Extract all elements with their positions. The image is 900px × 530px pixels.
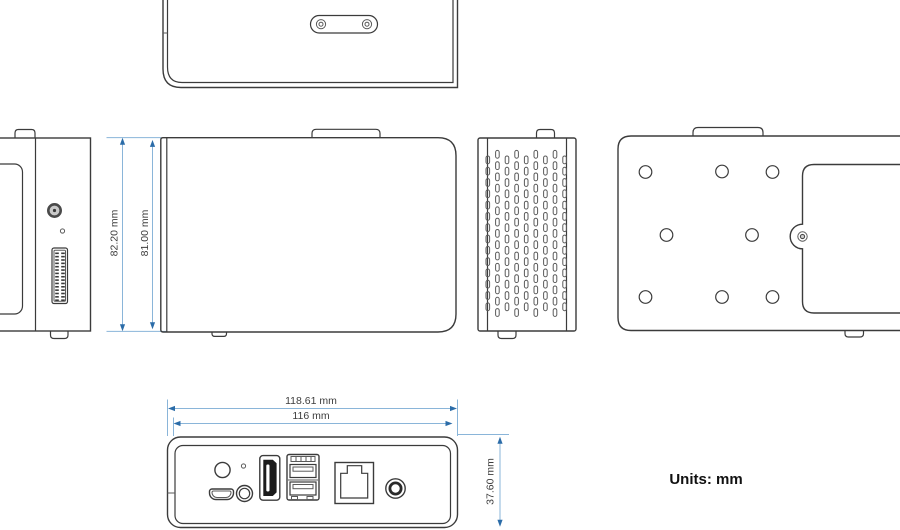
device-dimension-drawing: 82.20 mm 81.00 mm (0, 0, 900, 530)
vent-slot (553, 196, 557, 204)
vent-slot (544, 213, 548, 221)
front-outline (161, 138, 456, 332)
vent-slot (515, 196, 519, 204)
top-view-inner-outline (168, 0, 454, 83)
vent-slot (505, 213, 509, 221)
vent-slot (515, 297, 519, 305)
arrow-up-icon (150, 140, 155, 147)
connector-pin (61, 296, 65, 298)
vent-slot (524, 280, 528, 288)
height-dimensions: 82.20 mm 81.00 mm (107, 138, 167, 332)
vent-slot (553, 252, 557, 260)
vent-slot (534, 309, 538, 317)
vent-slot (563, 213, 567, 221)
arrow-up-icon (497, 437, 502, 444)
vent-slot (505, 156, 509, 164)
vent-slot-grid (486, 150, 566, 316)
vent-slot (553, 275, 557, 283)
vent-slot (515, 263, 519, 271)
vent-slot (505, 303, 509, 311)
vent-slot (524, 235, 528, 243)
vent-slot (534, 207, 538, 215)
top-tab (537, 130, 555, 139)
top-view (163, 0, 458, 88)
connector-pin (55, 259, 59, 261)
vent-slot (553, 241, 557, 249)
vent-slot (515, 150, 519, 158)
usb-foot (307, 497, 313, 500)
vent-slot (563, 167, 567, 175)
connector-pin (55, 273, 59, 275)
vent-slot (544, 156, 548, 164)
vent-slot (563, 235, 567, 243)
vent-slot (505, 167, 509, 175)
vent-slot (544, 280, 548, 288)
vent-slot (534, 241, 538, 249)
mounting-hole-grid (639, 165, 779, 303)
vent-slot (505, 269, 509, 277)
mounting-hole (660, 229, 673, 242)
dc-jack (386, 479, 405, 498)
vent-slot (515, 184, 519, 192)
vent-slot (496, 286, 500, 294)
power-button (215, 462, 230, 477)
vent-slot (496, 252, 500, 260)
vent-slot (544, 269, 548, 277)
connector-pin (55, 296, 59, 298)
connector-pin (61, 259, 65, 261)
mounting-hole (639, 166, 652, 179)
vent-side-view (478, 130, 576, 339)
height-outer-label: 82.20 mm (108, 209, 120, 256)
mounting-hole (716, 291, 729, 304)
vent-slot (553, 286, 557, 294)
vent-slot (544, 246, 548, 254)
usb-tongue (293, 467, 313, 471)
vent-slot (496, 196, 500, 204)
vent-slot (515, 162, 519, 170)
vent-slot (563, 269, 567, 277)
vent-slot (534, 275, 538, 283)
vent-slot (524, 156, 528, 164)
connector-pin (61, 256, 65, 258)
connector-pin (61, 276, 65, 278)
pin-connector-pins (55, 253, 65, 302)
vent-slot (524, 201, 528, 209)
vent-slot (496, 230, 500, 238)
mounting-hole (766, 291, 779, 304)
connector-pin (61, 299, 65, 301)
vent-slot (505, 280, 509, 288)
vent-slot (505, 224, 509, 232)
vent-slot (496, 275, 500, 283)
vent-slot (496, 173, 500, 181)
vent-slot (534, 150, 538, 158)
top-tab (312, 129, 380, 137)
rear-port-view (168, 437, 458, 528)
connector-pin (55, 283, 59, 285)
vent-slot (534, 297, 538, 305)
vent-slot (534, 230, 538, 238)
vent-slot (534, 218, 538, 226)
units-note: Units: mm (669, 471, 742, 488)
vent-slot (563, 303, 567, 311)
pinhole (60, 229, 64, 233)
vent-slot (524, 258, 528, 266)
connector-pin (55, 289, 59, 291)
vent-slot (505, 179, 509, 187)
height-inner-label: 81.00 mm (139, 209, 151, 256)
vent-slot (524, 269, 528, 277)
vent-slot (534, 173, 538, 181)
mounting-hole (639, 291, 652, 304)
bottom-tab (51, 331, 69, 339)
connector-pin (55, 279, 59, 281)
vent-slot (534, 184, 538, 192)
arrow-left-icon (168, 406, 175, 411)
top-tab (693, 128, 763, 137)
vent-slot (515, 275, 519, 283)
connector-pin (61, 279, 65, 281)
vent-slot (515, 230, 519, 238)
hdmi-slot (266, 465, 269, 492)
connector-pin (55, 293, 59, 295)
connector-pin (55, 256, 59, 258)
connector-pin (61, 269, 65, 271)
vent-slot (496, 241, 500, 249)
connector-pin (61, 263, 65, 265)
arrow-up-icon (120, 138, 125, 145)
usb-foot (292, 497, 298, 500)
vent-slot (553, 150, 557, 158)
connector-pin (55, 253, 59, 255)
screw-center-dot (53, 209, 56, 212)
depth-label: 37.60 mm (484, 458, 496, 505)
vent-slot (505, 235, 509, 243)
vent-slot (496, 309, 500, 317)
connector-pin (55, 299, 59, 301)
connector-pin (61, 293, 65, 295)
bottom-tab (498, 331, 516, 339)
screw-icon (319, 22, 323, 26)
led-hole (241, 464, 245, 468)
vent-slot (563, 280, 567, 288)
screw-icon (800, 234, 804, 238)
connector-pin (61, 266, 65, 268)
vent-slot (563, 201, 567, 209)
arrow-right-icon (446, 421, 453, 426)
vent-slot (496, 263, 500, 271)
screw-icon (362, 20, 371, 29)
ethernet-port (335, 463, 374, 504)
vent-slot (534, 263, 538, 271)
vent-slot (515, 241, 519, 249)
connector-pin (61, 289, 65, 291)
connector-pin (55, 286, 59, 288)
top-tab (15, 130, 35, 139)
mounting-hole (766, 166, 779, 179)
vent-slot (524, 292, 528, 300)
connector-pin (55, 266, 59, 268)
vent-slot (534, 196, 538, 204)
connector-pin (61, 273, 65, 275)
vent-slot (553, 207, 557, 215)
connector-pin (61, 286, 65, 288)
vent-slot (505, 258, 509, 266)
vent-slot (544, 292, 548, 300)
vent-slot (563, 258, 567, 266)
bottom-view (618, 128, 900, 338)
vent-slot (563, 156, 567, 164)
left-side-view (0, 130, 91, 339)
vent-slot (496, 218, 500, 226)
arrow-right-icon (450, 406, 457, 411)
vent-slot (524, 179, 528, 187)
vent-slot (544, 167, 548, 175)
vent-slot (563, 292, 567, 300)
vent-slot (544, 201, 548, 209)
connector-pin (55, 276, 59, 278)
vent-slot (505, 292, 509, 300)
vent-slot (524, 246, 528, 254)
vent-slot (496, 207, 500, 215)
vent-slot (524, 190, 528, 198)
vent-slot (553, 173, 557, 181)
vent-slot (515, 173, 519, 181)
side-body-outline (0, 138, 91, 331)
vent-slot (505, 246, 509, 254)
vent-slot (505, 190, 509, 198)
vent-slot (515, 252, 519, 260)
vent-slot (534, 252, 538, 260)
vent-slot (505, 201, 509, 209)
connector-pin (55, 269, 59, 271)
vent-slot (553, 230, 557, 238)
top-view-outer-outline (163, 0, 458, 88)
vent-slot (544, 190, 548, 198)
vent-slot (534, 162, 538, 170)
vent-slot (496, 297, 500, 305)
vent-slot (496, 162, 500, 170)
arrow-down-icon (120, 324, 125, 331)
vent-slot (544, 235, 548, 243)
vent-slot (524, 303, 528, 311)
vent-slot (553, 309, 557, 317)
usb-tongue (293, 485, 313, 489)
arrow-down-icon (497, 520, 502, 527)
vent-slot (544, 258, 548, 266)
vent-slot (544, 224, 548, 232)
vent-slot (553, 218, 557, 226)
vent-slot (553, 297, 557, 305)
screw-icon (316, 20, 325, 29)
width-outer-label: 118.61 mm (285, 395, 337, 407)
mount-pill (311, 16, 378, 34)
vent-slot (553, 263, 557, 271)
vent-slot (544, 303, 548, 311)
mounting-hole (716, 165, 729, 178)
vent-slot (515, 309, 519, 317)
bottom-tab (845, 331, 864, 338)
dc-jack-ring (390, 483, 401, 494)
vent-slot (496, 184, 500, 192)
vent-slot (553, 184, 557, 192)
vent-slot (524, 213, 528, 221)
vent-slot (515, 207, 519, 215)
vent-slot (544, 179, 548, 187)
screw-icon (365, 22, 369, 26)
vent-slot (524, 167, 528, 175)
mounting-hole (746, 229, 759, 242)
ethernet-opening (341, 466, 368, 498)
vent-slot (563, 224, 567, 232)
front-view (161, 129, 456, 336)
vent-slot (563, 190, 567, 198)
vent-slot (515, 286, 519, 294)
connector-pin (61, 283, 65, 285)
arrow-left-icon (174, 421, 181, 426)
hdmi-port-opening (263, 460, 276, 496)
arrow-down-icon (150, 322, 155, 329)
technical-drawing-canvas: 82.20 mm 81.00 mm (0, 0, 900, 530)
width-inner-label: 116 mm (292, 410, 329, 422)
vent-slot (515, 218, 519, 226)
vent-slot (563, 246, 567, 254)
micro-usb-inner (212, 491, 231, 498)
vent-slot (563, 179, 567, 187)
audio-jack-inner (239, 488, 249, 498)
vent-slot (553, 162, 557, 170)
vent-slot (524, 224, 528, 232)
vent-slot (496, 150, 500, 158)
connector-pin (55, 263, 59, 265)
side-panel-outline (0, 164, 23, 314)
connector-pin (61, 253, 65, 255)
vent-slot (534, 286, 538, 294)
usb-ports (287, 455, 319, 501)
